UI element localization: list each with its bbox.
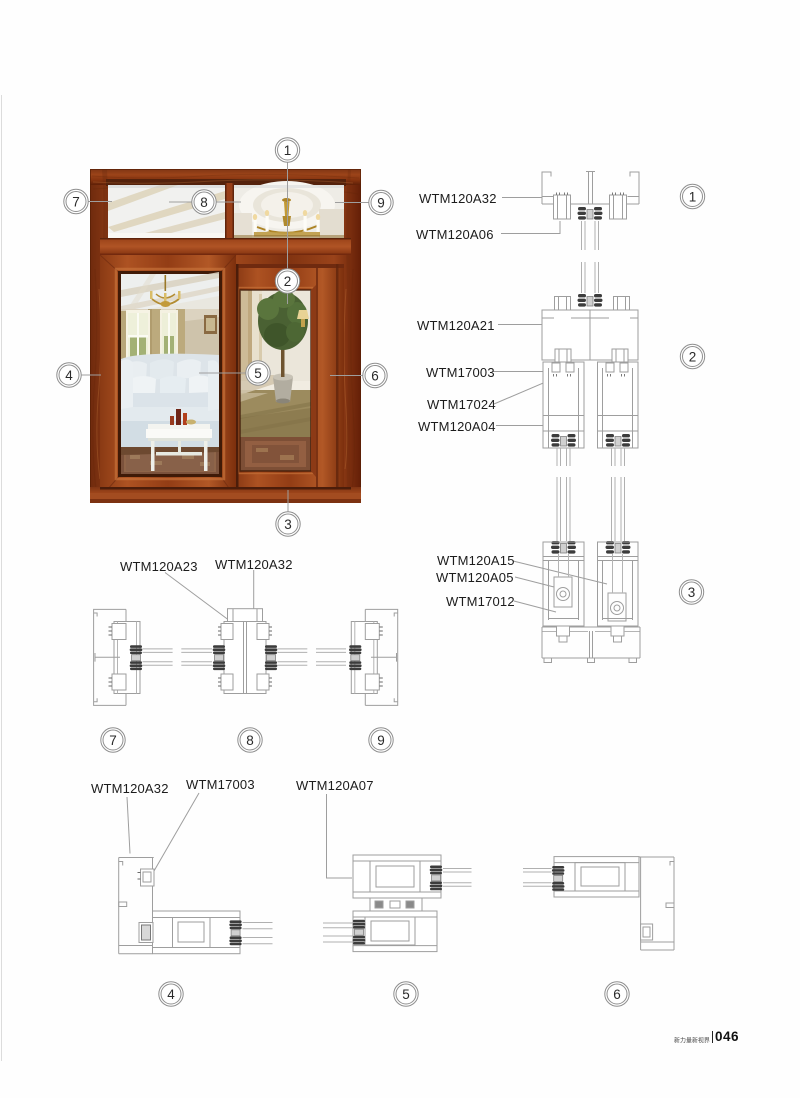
svg-text:9: 9	[377, 733, 385, 748]
svg-text:1: 1	[284, 143, 292, 158]
svg-text:9: 9	[377, 195, 385, 210]
svg-text:7: 7	[72, 194, 80, 209]
svg-text:2: 2	[284, 274, 292, 289]
svg-text:2: 2	[689, 349, 697, 364]
svg-text:6: 6	[371, 368, 379, 383]
svg-text:7: 7	[109, 733, 117, 748]
svg-text:3: 3	[284, 517, 292, 532]
svg-text:5: 5	[254, 366, 262, 381]
svg-text:5: 5	[402, 987, 410, 1002]
svg-text:3: 3	[688, 585, 696, 600]
svg-text:4: 4	[167, 987, 175, 1002]
svg-text:6: 6	[613, 987, 621, 1002]
svg-text:8: 8	[200, 195, 208, 210]
svg-text:1: 1	[689, 189, 697, 204]
svg-text:8: 8	[246, 733, 254, 748]
svg-text:4: 4	[65, 368, 73, 383]
